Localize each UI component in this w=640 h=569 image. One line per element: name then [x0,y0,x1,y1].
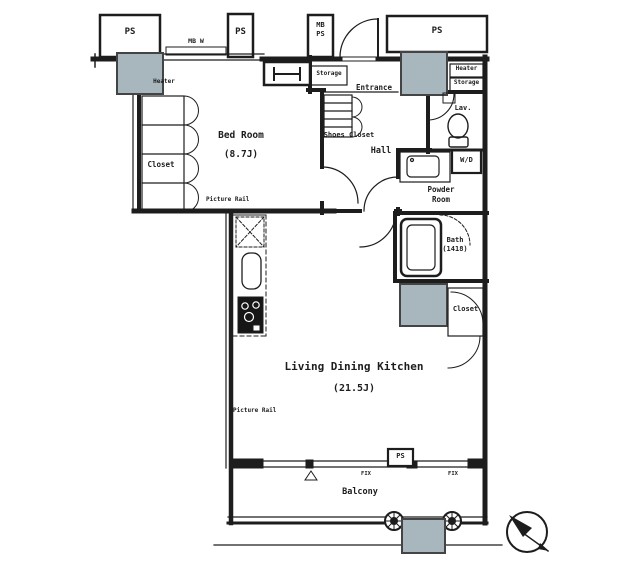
washbasin [400,152,450,182]
bedroom-size-label: (8.7J) [196,150,286,160]
floor-plan-linework [0,0,640,569]
closet-right-label: Closet [447,306,484,314]
bath-label-1: Bath [434,237,476,245]
ldk-closet [448,288,483,368]
balcony-structure [214,512,502,553]
window-symbol [264,62,310,85]
storage-left-label: Storage [311,71,347,78]
fix-window-label-1: FIX [354,471,378,477]
meter-box-water-label: MB W [172,38,220,45]
heater-right-label: Heater [450,66,483,73]
pillars [117,52,447,326]
picture-rail-label-top: Picture Rail [206,197,256,204]
entrance-door [340,19,378,57]
shoes-closet-label: Shoes Closet [316,132,382,140]
mb-label: MB [308,22,333,30]
ps-label-4: PS [388,453,413,461]
closet-left-label: Closet [141,161,181,169]
balcony-label: Balcony [329,488,391,497]
hall-label: Hall [364,147,398,156]
ps-label-2: PS [228,28,253,38]
kitchen-sink [242,253,261,289]
bedroom-door-arc [322,167,358,203]
fix-window-label-2: FIX [441,471,465,477]
hall-ldk-door-arc [360,211,396,247]
refrigerator-space [236,217,264,247]
powder-room-label-2: Room [415,196,467,204]
floor-plan: PS PS MB W MB PS PS Heater Heater Storag… [0,0,640,569]
ps-label-1: PS [100,28,160,38]
lav-label: Lav. [450,105,476,113]
bedroom-closet [142,96,199,212]
bath-label-2: (1418) [434,246,476,254]
stove [238,297,263,333]
storage-right-label: Storage [450,80,483,87]
ps-label-3: PS [387,27,487,37]
compass-icon [507,512,549,552]
kitchen [233,215,266,336]
heater-left-label: Heater [146,79,182,86]
bedroom-label: Bed Room [196,131,286,141]
ldk-label: Living Dining Kitchen [268,361,440,373]
entrance-label: Entrance [348,84,400,92]
lavatory [428,93,468,147]
mb-ps-label: PS [308,31,333,39]
washer-dryer-label: W/D [452,157,481,165]
picture-rail-label-left: Picture Rail [233,408,283,415]
ldk-size-label: (21.5J) [268,383,440,394]
powder-door-arc [364,177,398,211]
powder-room-label-1: Powder [415,186,467,194]
